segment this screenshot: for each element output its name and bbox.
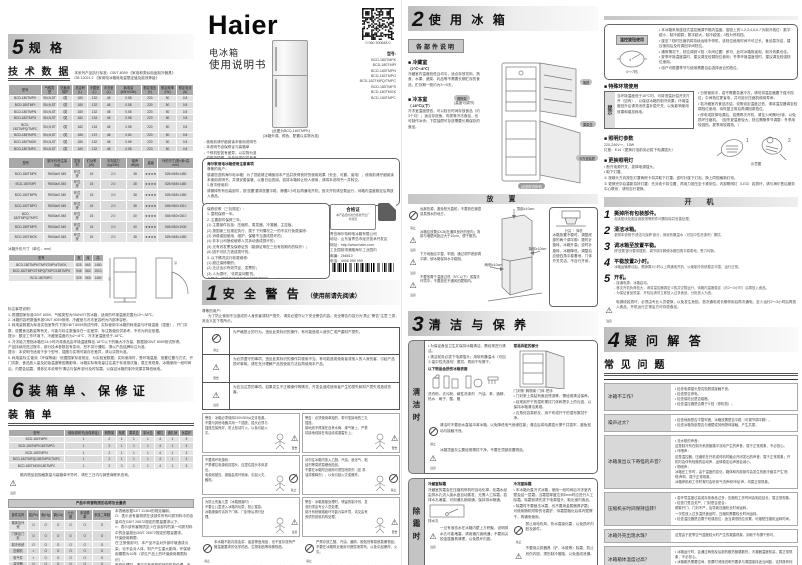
safety-item-text: 不要放置于温度过低（5℃以下）或露天环境中；不要放在不通风的壁橱内。: [420, 275, 481, 285]
warning-note-text: 冰箱顶盖灰尘要经常擦拭干净，不要在顶部放置物品。: [440, 448, 526, 471]
text-line: ② 更换完毕后重新扣好灯罩：先对准卡扣位置，再用力按压至卡紧到位。内部照明灯（L…: [604, 182, 798, 193]
table-row: BCD-182TMPGR600a/0.045环戊烷152.038★★★★545×…: [9, 200, 194, 211]
table-cell: O: [64, 520, 77, 531]
table-cell: SN,N,ST: [42, 121, 58, 132]
table-cell: 525: [74, 261, 83, 268]
table-cell: 545: [74, 268, 83, 275]
section5-title: 规 格: [29, 39, 65, 58]
table-cell: SN,N,ST: [42, 115, 58, 122]
safety-item-text: 远离热源，避免阳光直射；不要放在潮湿或易溅水的地方。: [420, 207, 481, 217]
knob-caption: 0～7档: [609, 70, 655, 75]
hazard-table: 部件名称铅(Pb)汞(Hg)镉(Cd)六价铬多溴联苯多溴二苯醚箱体及外壳OOOO…: [8, 509, 112, 565]
packing-list-heading: 装 箱 单: [8, 406, 194, 426]
table-cell: O: [52, 548, 64, 555]
warning-icon: ⚠注意: [291, 512, 298, 535]
table-cell: O: [40, 555, 52, 562]
table-cell: ★★★★: [143, 190, 157, 201]
section1-title: 安 全 警 告: [223, 285, 302, 304]
table-header-cell: 制冷剂/充注量(kg): [43, 158, 71, 169]
prohibition-icon: 禁止: [289, 470, 298, 493]
table-row: BCD-180TMPCSN,N,STⅠ类180132480.58220500.8: [9, 145, 194, 152]
table-cell: 525×565×1480: [158, 232, 194, 243]
table-row: BCD-182TMPQ/TMPCSN,N,STⅠ类182134480.58220…: [9, 121, 194, 132]
table-cell: ★★★★: [143, 221, 157, 232]
qr-caption: 0 060 300648 0: [362, 41, 394, 46]
section1-number: 1: [206, 284, 218, 304]
table-cell: 环戊烷: [71, 179, 83, 190]
lamp-caption: 示意图: [714, 162, 798, 167]
fridge-defrost-text: 冷藏室的霜会在压缩机停机时自动化掉，化霜水经由排水孔流入接水盘自动蒸发，无需人工…: [428, 488, 509, 504]
table-cell: 132: [87, 102, 101, 109]
warning-grid-cell: 警告：冰箱必须使用220V/50Hz交流电源。不要与其他电器共用一个插座，插头必…: [202, 413, 300, 453]
callout-bottle: 瓶框: [580, 79, 592, 85]
startup-warning-text: 电源线若损坏，必须由专业人员更换，以免发生危险。首次通电或长期停用后再次通电，至…: [616, 300, 798, 323]
table-cell: R600a/0.045: [43, 200, 71, 211]
table-cell: O: [27, 520, 39, 531]
warning-icon: ⚠警告: [211, 357, 221, 380]
table-cell: SN,N,ST: [42, 145, 58, 152]
table-row: BCD-180TMPI/182TMPG12111413: [9, 443, 194, 450]
callout-veg: 果菜盒: [580, 121, 596, 127]
faq-row: 冰箱外壳出现水珠？这是由于夏季空气湿度较大时产生的凝露现象，用软干布擦干即可。: [604, 529, 798, 543]
table-cell: 1: [116, 449, 126, 456]
tip-label: 提示: [605, 92, 615, 128]
table-cell: 0.8: [177, 108, 194, 115]
svg-text:深: 深: [174, 260, 177, 265]
placement-label-side: 两侧≥10cm: [484, 263, 502, 268]
table-cell: O: [52, 531, 64, 542]
table-cell: 132: [87, 108, 101, 115]
table-cell: BCD-182TMPQ/TMPC: [9, 121, 42, 132]
text-line: O：表示该有害物质在该部件所有均质材料中的含量均在GB/T 26572规定的限量…: [115, 514, 194, 525]
manual-page: 5 规 格 技 术 数 据 本系列产品执行标准：GB/T 8059 《家用和类似…: [0, 0, 802, 565]
text-line: • 取下灯罩。: [604, 170, 710, 175]
table-cell: O: [64, 555, 77, 562]
startup-step: 2清洁冰箱。参照本说明书'清洁与保养'部分，用软布蘸温水（可加中性洗涤剂）擦拭。: [604, 226, 798, 238]
table-cell: BCD-182TMPQ/TMPC: [9, 211, 44, 222]
table-cell: 2: [102, 449, 116, 456]
table-cell: 134: [87, 115, 101, 122]
table-cell: 137: [87, 132, 101, 139]
table-cell: 560: [83, 268, 92, 275]
callout-figure-note: (此图仅供参考): [518, 183, 545, 189]
table-row: 电气件×OOOOO: [9, 555, 112, 562]
table-header-cell: 通孔销: [165, 429, 179, 436]
freezer-defrost-warnings: 禁止禁止用电吹风、热水直接化霜，以免损坏内胆及部件。⚠注意不要用尖锐器具（铲、冰…: [514, 522, 595, 565]
faq-question: 压缩机长时间保持运转？: [605, 493, 671, 525]
warning-grid-illustration: [371, 473, 389, 491]
table-cell: 0.58: [116, 115, 142, 122]
table-cell: O: [40, 561, 52, 565]
table-header-cell: 星级: [143, 158, 157, 169]
section6-number: 6: [12, 381, 24, 401]
table-cell: 50: [158, 132, 176, 139]
table-cell: 220: [141, 102, 158, 109]
table-cell: 180: [73, 139, 87, 146]
table-cell: O: [64, 531, 77, 542]
startup-step: 5开机。- 接通电源，冰箱启动。 - 首次开机负荷较大，请将温控器调至'4'档并…: [604, 274, 798, 296]
safety-list: 禁止本冰箱不能存放血浆、疫苗等医用品，也不宜存放有严格温度要求的化学药品、生物制…: [202, 540, 400, 565]
placement-label-back: 背部≥10cm: [528, 247, 546, 252]
table-cell: 0.8: [177, 145, 194, 152]
table-header-cell: 部件名称: [9, 510, 28, 521]
section4-number: 4: [608, 331, 620, 351]
table-cell: 2.0: [100, 179, 126, 190]
fridge-compartment-text: 冷藏室内温度较低且均匀，适合存放饮料、熟食、水果、蔬菜、乳品等不需要长期贮存的食…: [408, 72, 480, 88]
table-cell: 1: [65, 462, 103, 469]
faq-answer: • 流水般的声音： 这是制冷剂在制冷系统管路中流动产生的声音，属于正常现象，不必…: [671, 436, 797, 488]
warning-icon: ⚠注意: [211, 385, 221, 408]
table-cell: 1: [116, 443, 126, 450]
table-cell: 545×560×1510: [158, 211, 194, 222]
table-header-cell: 型号: [9, 429, 65, 436]
table-cell: 180: [73, 145, 87, 152]
text-line: 3. 耗电量数据为标准实验室条件下按GB/T 8059测试所得，实际使用中冰箱的…: [8, 323, 194, 334]
warning-grid-cell: 警告：必须使用单独的、带可靠接地的三孔插座。接地线不得接在自来水管、煤气管上，严…: [302, 413, 400, 453]
table-cell: O: [93, 548, 112, 555]
table-cell: 0.8: [177, 95, 194, 102]
table-cell: 3: [179, 449, 193, 456]
warning-icon: ⚠警告: [391, 512, 398, 535]
fridge-compartment-heading: ■ 冷藏室: [408, 59, 480, 66]
section2-number: 2: [412, 10, 424, 30]
special-use-lines: • 日常使用中，若不需要急速冷冻，请勿将温控器置于强冷档位；中间档位更省电，并可…: [698, 91, 798, 129]
warning-grid-illustration: [271, 431, 289, 449]
cleaning-box: 清洁时 • 为保证食品卫生并保持冰箱清洁，需经常进行清洁。• 清洁前务必拔下电源…: [408, 340, 598, 474]
table-cell: 134: [87, 121, 101, 132]
table-cell: 545×560×1530: [158, 221, 194, 232]
table-cell: 180: [73, 102, 87, 109]
table-cell: 525×565×1480: [158, 168, 194, 179]
section2-header: 2 使 用 冰 箱: [408, 6, 598, 31]
cleaning-items-caption: 洗衣粉、去污粉、碱性洗涤剂 汽油、苯、酒精、热水 刷子、酸、蜡: [428, 392, 509, 402]
table-cell: BCD-180TMPC: [9, 275, 75, 282]
table-header-cell: 额定频率(Hz): [158, 85, 176, 96]
table-cell: O: [93, 520, 112, 531]
table-header-row: 型号制冷剂/充注量(kg)发泡剂灯功率(W)冷冻能力(kg/24h)噪声dB(A…: [9, 158, 194, 169]
tip-text: 当环境温度低于16℃时，可将低温补偿开关打开（如有），以保证冰箱的制冷效果；环境…: [615, 92, 693, 128]
safety-item-text: 严禁存放乙醚、汽油、酒精、胶粘剂等易燃易爆物品；不要在冰箱附近使用可燃性喷雾剂，…: [316, 540, 400, 554]
faq-answer-line: • 冰箱散热需要空间，放置时请按说明书要求与周围保持适当间距，这样既有利于散热，…: [675, 560, 793, 565]
table-cell: SN,N,ST: [42, 95, 58, 102]
step-number: 5: [604, 274, 610, 296]
table-cell: 1: [165, 462, 179, 469]
faq-row: 冰箱箱体温度过高？• 冰箱运行时，会通过两侧及后部的散热管路散热，冷凝器温度较高…: [604, 546, 798, 565]
table-cell: BCD-180TMGK/180TMPC: [9, 462, 65, 469]
warning-grid-text: 为防止伤害儿童（冰箱报废时）：不要让儿童进入冰箱内玩耍，防止窒息。冰箱报废时请拆…: [205, 500, 269, 520]
lamp-steps: ① 按箭头方向按压灯罩两侧卡扣并取下灯罩，逆时针旋下灯泡，换上同规格新灯泡。② …: [604, 176, 798, 192]
warning-grid-cell: 不要损坏电源线：严禁硬拉电源线拔插头，应捏住插头本体拔出。电源线被压、被踏会损坏…: [202, 455, 300, 495]
table-cell: 0.58: [116, 108, 142, 115]
faq-row: 压缩机长时间保持运转？• 若环境温度过高或存放食品过多，压缩机工作时间会相应延长…: [604, 492, 798, 526]
table-cell: 3: [179, 462, 193, 469]
table-cell: O: [52, 555, 64, 562]
table-header-cell: 灯功率(W): [83, 158, 100, 169]
section1-subtitle: （使用前请先阅读）: [307, 291, 361, 304]
table-cell: 4: [155, 456, 165, 463]
prohibition-icon: 禁止: [389, 470, 398, 493]
warning-grid-text: 不要损坏电源线：严禁硬拉电源线拔插头，应捏住插头本体拔出。电源线被压、被踏会损坏…: [205, 458, 269, 483]
table-cell: SN,N,ST: [42, 108, 58, 115]
table-cell: 182: [73, 121, 87, 132]
table-cell: 1: [65, 449, 103, 456]
table-cell: Ⅰ类: [57, 121, 73, 132]
table-cell: 环戊烷: [71, 221, 83, 232]
section3-header: 3 清 洁 与 保 养: [408, 311, 598, 336]
faq-answer: • 检查地面是否平整牢固，冰箱放置是否平稳（可调节调平脚）。• 检查冰箱背部是否…: [671, 415, 797, 431]
table-cell: BCD-180TMGK: [9, 232, 44, 243]
text-line: BCD-180TMPC: [330, 96, 396, 101]
table-row: BCD-180TMPIR600a/0.045环戊烷152.038★★★★525×…: [9, 179, 194, 190]
cleaning-warnings: 禁止清洁时不要用水直接冲淋冰箱，以免降低电气绝缘性能；清洁后将电源插头擦干并插牢…: [428, 423, 594, 470]
table-cell: BCD-180TMPK: [9, 95, 42, 102]
table-header-cell: 冷冻能力(kg/24h): [100, 158, 126, 169]
safety-item: 禁止严禁存放乙醚、汽油、酒精、胶粘剂等易燃易爆物品；不要在冰箱附近使用可燃性喷雾…: [304, 540, 400, 563]
table-cell: 15: [83, 232, 100, 243]
table-cell: 1: [116, 456, 126, 463]
table-header-cell: 深: [83, 255, 92, 262]
table-cell: 40: [126, 211, 143, 222]
table-header-cell: 冷冻室(L): [102, 85, 116, 96]
table-cell: 2.0: [100, 200, 126, 211]
table-cell: 0.8: [177, 102, 194, 109]
table-cell: 525: [74, 275, 83, 282]
table-cell: 1480: [92, 275, 103, 282]
lamp-change-lines: • 断开电源开关，拔掉电源插头。• 取下灯罩。: [604, 165, 710, 176]
text-line: 感谢您选购海尔电冰箱！为了您能够正确使用本产品并获得良好的使用效果（安全、可靠、…: [207, 173, 395, 184]
column-spec: 5 规 格 技 术 数 据 本系列产品执行标准：GB/T 8059 《家用和类似…: [8, 0, 194, 565]
step-detail: 冰箱运输移动后，需静置2小时以上再通电开机，以使制冷系统稳定可靠、运行正常。: [614, 265, 741, 270]
faq-question: 冰箱发出以下奇怪的声音？: [605, 436, 671, 488]
usage-notice-box: 海尔家用电冰箱使用注意事项 尊敬的用户：感谢您选购海尔电冰箱！为了您能够正确使用…: [202, 158, 400, 206]
table-row: BCD-180TMPISN,N,STⅠ类180132480.58220500.8: [9, 102, 194, 109]
table-cell: 环戊烷: [71, 190, 83, 201]
table-cell: 48: [102, 139, 116, 146]
cover-product-image: [272, 40, 308, 128]
table-cell: O: [93, 531, 112, 542]
table-cell: 0.8: [177, 115, 194, 122]
table-cell: 环戊烷: [71, 211, 83, 222]
faq-question: 冰箱不工作？: [605, 384, 671, 410]
table-row: BCD-180TMPN12111413: [9, 449, 194, 456]
table-cell: 565: [83, 275, 92, 282]
faq-answer-line: 这是温控器、压缩机在开机或停机时触点开闭发出的声音，属于正常现象；开机时会伴有轻…: [675, 455, 793, 465]
table-cell: 182: [73, 115, 87, 122]
column-faq: 温控旋钮使用 4 0～7档 • 本冰箱采用旋钮式温控器调节箱内温度。旋钮上的'1…: [604, 0, 798, 565]
corner-sticker: [378, 203, 396, 221]
table-cell: 48: [102, 132, 116, 139]
table-header-cell: 铅(Pb): [27, 510, 39, 521]
table-cell: 1: [127, 462, 141, 469]
text-line: • 门封条上易粘有食品残渣等，需经常清洁保养。: [514, 394, 595, 399]
faq-answer: • 若环境温度过高或存放食品过多，压缩机工作时间会相应延长，属正常现象。• 检查…: [671, 493, 797, 525]
warning-grid: 警告：冰箱必须使用220V/50Hz交流电源。不要与其他电器共用一个插座，插头必…: [202, 413, 400, 537]
table-cell: 132: [87, 145, 101, 152]
text-line: 在'正常使用'时，本产品不会对外部环境造成污染，也不会对人体、财产产生重大影响，…: [115, 541, 194, 563]
table-cell: 温控器: [9, 561, 28, 565]
faq-question: 噪声过大？: [605, 415, 671, 431]
dirty-parts-lines: • 门封条上易粘有食品残渣等，需经常清洁保养。• 经常用拧干的湿布擦拭门体和把手…: [514, 394, 595, 421]
table-header-cell: 冷藏室(L): [87, 85, 101, 96]
warning-grid-illustration: [271, 515, 289, 533]
parts-tab: 各部件说明: [408, 39, 464, 53]
table-cell: 50: [158, 108, 176, 115]
table-header-row: 型号使用说明书(含保修证)搁物架瓶框果菜盒制冰盒螺钉通孔销化霜铲: [9, 429, 194, 436]
table-cell: O: [27, 531, 39, 542]
table-cell: Ⅰ类: [57, 102, 73, 109]
table-cell: 制冷系统: [9, 541, 28, 548]
table-row: 制冷系统OOOOOO: [9, 541, 112, 548]
table-cell: BCD-180TMPK: [9, 436, 65, 443]
table-cell: BCD-182TMPG: [9, 200, 44, 211]
table-header-cell: 制冰盒: [141, 429, 155, 436]
safety-item: ⚠注意下方地面应平整、牢固；通过调节底部调平脚，使冰箱保持水平稳固。: [408, 252, 481, 275]
text-line: • 停电或拔掉电源后，若需再次开机，请至少间隔5分钟，以免损坏压缩机。（因冬夏温…: [698, 113, 798, 129]
table-row: BCD-180TMPKSN,N,STⅠ类180132480.58220500.8: [9, 95, 194, 102]
table-cell: BCD-182TMPG/TMPQ/TMPC/185TMPS: [9, 268, 75, 275]
safety-item: ⚠注意冰箱应放置(DCB)在通风良好的室内；背部与墙壁间距应大于10cm，便于散…: [408, 230, 481, 253]
table-header-cell: 镉(Cd): [52, 510, 64, 521]
table-cell: 2: [102, 462, 116, 469]
table-cell: 1: [141, 449, 155, 456]
freezer-compartment-text: 冷冻室温度很低，可以较长时间存放食品（约3个月）；适合存放鱼、肉类等冷冻食品，也…: [408, 109, 480, 130]
dimension-drawing: 高 宽 深: [108, 254, 192, 304]
table-cell: O: [64, 561, 77, 565]
thermostat-pill: 温控旋钮使用: [616, 35, 648, 45]
startup-step: 1撕掉所有包装部件。泡沫垫块及固定用胶带等附件均需拆除并妥善处理。: [604, 210, 798, 222]
definition-row: 禁止为严格禁止的行为。违反此类标识的操作，有可能造成人身伤亡或严重财产损失。: [203, 328, 399, 355]
section2-band-continuation: [604, 16, 798, 20]
table-cell: O: [93, 541, 112, 548]
table-cell: 3: [179, 436, 193, 443]
table-cell: BCD-180TMPN: [9, 449, 65, 456]
table-header-cell: 发泡剂: [71, 158, 83, 169]
table-row: BCD-182TMPGSN,N,STⅠ类182134480.58220500.8: [9, 115, 194, 122]
table-cell: 132: [87, 95, 101, 102]
table-cell: 1: [141, 443, 155, 450]
table-cell: 545×560×1510: [158, 200, 194, 211]
svg-text:2: 2: [788, 138, 791, 144]
warning-grid-cell: 请勿往冰箱内放入乙醚、汽油、液化气、粘结剂等易燃易爆危险品。不要在冰箱附近使用可…: [302, 455, 400, 495]
faq-row: 冰箱发出以下奇怪的声音？• 流水般的声音： 这是制冷剂在制冷系统管路中流动产生的…: [604, 435, 798, 489]
warning-note: 禁止禁止用电吹风、热水直接化霜，以免损坏内胆及部件。: [514, 522, 595, 545]
table-cell: Ⅰ类: [57, 139, 73, 146]
table-cell: 0.58: [116, 145, 142, 152]
lamp-spec-heading: ■ 照明灯参数: [604, 135, 710, 142]
table-cell: 180: [73, 95, 87, 102]
spec-notes: 标注事项说明：1. 根据国家标准GB/T 8059，气候类型为SN/N/ST的冰…: [8, 307, 194, 372]
faq-question: 冰箱外壳出现水珠？: [605, 530, 671, 542]
table-cell: O: [52, 561, 64, 565]
table-header-cell: 螺钉: [155, 429, 165, 436]
table-cell: 1: [165, 436, 179, 443]
table-cell: BCD-182TMPG: [9, 115, 42, 122]
leveling-box: 升高 ｜ 降低 冰箱放置不稳时，调整底部的两个调平脚：顺时针旋转，冰箱升高；逆时…: [549, 207, 598, 307]
faq-answer-line: 冰箱停机和工作时有时会听到气流声和'咔哒'声，均属正常现象。: [675, 480, 793, 485]
table-cell: 220: [141, 108, 158, 115]
warning-grid-text: 请勿往冰箱内放入乙醚、汽油、液化气、粘结剂等易燃易爆危险品。不要在冰箱附近使用可…: [305, 458, 369, 478]
table-cell: BCD-182TMPQ/185TMPS/TMPC: [9, 456, 65, 463]
column-use: 2 使 用 冰 箱 各部件说明 ■ 冷藏室 （2℃～8℃） 冷藏室内温度较低且均…: [408, 0, 598, 565]
text-line: • 本冰箱为直冷式冰箱，使用一段时间后冷冻室内壁会结一层霜；当霜层厚度达到5mm…: [514, 488, 595, 504]
section2-title: 使 用 冰 箱: [429, 11, 508, 30]
warning-note-text: 一旦有液态水在冰箱内壁上方积聚，说明排水孔可能堵塞，请用通孔销疏通；不要用尖锐金…: [440, 526, 509, 549]
callout-drawer: 冷冻室抽屉: [576, 155, 598, 161]
faq-heading: 常 见 问 题: [604, 356, 798, 376]
section6-header: 6 装 箱 单 、 保 修 证: [8, 377, 194, 402]
parts-diagram: [484, 59, 594, 187]
table-cell: O: [40, 531, 52, 542]
table-cell: BCD-180TMPK: [9, 168, 44, 179]
faq-answer-line: 冰箱在工作时，由于温度的变化，箱体和内部部件会发生热胀冷缩并产生'啪啪'声响，属…: [675, 470, 793, 480]
table-cell: 3: [179, 443, 193, 450]
table-cell: 48: [102, 115, 116, 122]
definition-text: 为必须遵守的事项。违反此类标识的操作并使用不当，有可能造成使用者或他人的人身伤害…: [230, 355, 399, 382]
cleaning-items-icons: [428, 372, 506, 392]
table-cell: 220: [141, 115, 158, 122]
certificate-card: 合格证 本产品经检验合格准予出厂 检验员: [330, 204, 376, 230]
table-cell: 4: [155, 449, 165, 456]
table-cell: 2.0: [100, 221, 126, 232]
table-cell: 2: [102, 443, 116, 450]
section1-header: 1 安 全 警 告 （使用前请先阅读）: [202, 280, 400, 305]
thermostat-lines: • 本冰箱采用旋钮式温控器调节箱内温度。旋钮上的'1,2,3,4,5,6,7'为…: [659, 28, 793, 75]
text-line: 灯座：E14（更换灯泡前务必拔下电源插头）: [604, 148, 710, 153]
table-cell: 185: [73, 132, 87, 139]
warning-icon: ⚠注意: [428, 526, 438, 549]
warning-grid-illustration: [371, 515, 389, 533]
warning-grid-illustration: [271, 473, 289, 491]
svg-text:1: 1: [746, 138, 749, 144]
text-line: • 为保证食品卫生并保持冰箱清洁，需经常进行清洁。: [428, 344, 509, 355]
table-cell: 0.8: [177, 139, 194, 146]
table-header-cell: 外形尺寸(宽×深×高mm): [158, 158, 194, 169]
text-line: • 清洁前务必拔下电源插头；用软布蘸温水（可加少量中性洗涤剂）擦拭，再用干布擦干…: [428, 355, 509, 366]
table-cell: 2.0: [100, 211, 126, 222]
table-header-cell: 噪声dB(A): [126, 158, 143, 169]
faq-answer-line: 这是由于夏季空气湿度较大时产生的凝露现象，用软干布擦干即可。: [675, 533, 793, 538]
table-cell: ★★★★: [143, 232, 157, 243]
table-cell: 2: [102, 456, 116, 463]
leveling-foot-drawing: [552, 210, 590, 228]
table-header-cell: 高: [92, 255, 103, 262]
text-line: 地址：山东省青岛市经济技术开发区: [330, 237, 396, 242]
table-cell: 1: [141, 436, 155, 443]
placement-label-top: 顶部≥10cm: [516, 207, 534, 212]
table-cell: 50: [158, 139, 176, 146]
svg-text:宽: 宽: [123, 297, 126, 302]
table-cell: 1: [141, 456, 155, 463]
table-cell: 15: [83, 168, 100, 179]
table-cell: BCD-180TMPI: [9, 102, 42, 109]
table-cell: 38: [126, 190, 143, 201]
table-cell: 38: [126, 232, 143, 243]
model-list: 型号: BCD-180TMPKBCD-180TMPIBCD-180TMPNBCD…: [330, 52, 396, 101]
warning-note-text: 不要用尖锐器具（铲、冰锥等）除霜，防止划伤内胆、损伤制冷管路，以免造成泄漏。: [526, 546, 595, 565]
table-cell: 门体及门封: [9, 531, 28, 542]
table-header-cell: 总容积(L): [73, 85, 87, 96]
table-cell: 220: [141, 139, 158, 146]
table-header-cell: 型号: [9, 255, 75, 262]
step-detail: 泡沫垫块及固定用胶带等附件均需拆除并妥善处理。: [614, 217, 692, 222]
faq-answer: 这是由于夏季空气湿度较大时产生的凝露现象，用软干布擦干即可。: [671, 530, 797, 542]
table-cell: 1: [65, 443, 103, 450]
table-header-cell: 气候类型: [42, 85, 58, 96]
table-cell: BCD-180TMPN: [9, 190, 44, 201]
table-cell: O: [27, 541, 39, 548]
table-cell: 1: [127, 449, 141, 456]
table-header-cell: 多溴二苯醚: [93, 510, 112, 521]
